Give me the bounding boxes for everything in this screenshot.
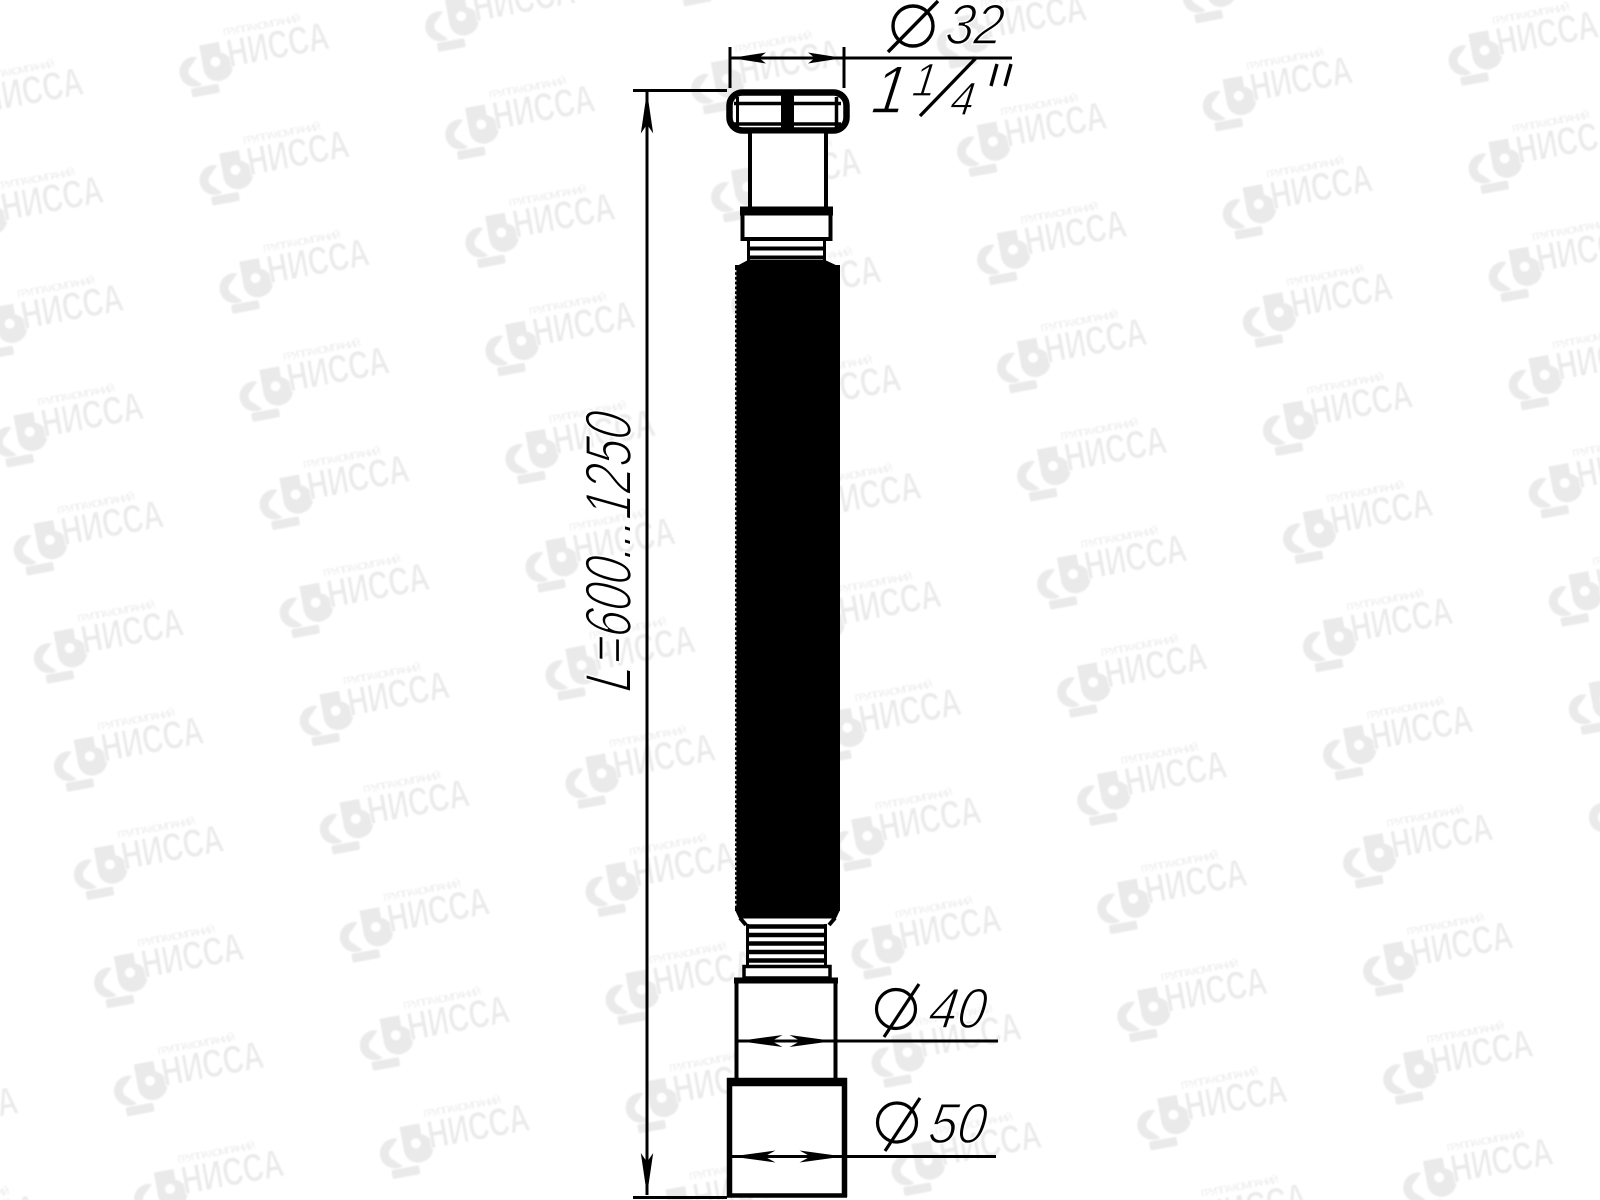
svg-text:L=600...1250: L=600...1250 bbox=[571, 406, 645, 695]
svg-text:32: 32 bbox=[942, 0, 1008, 57]
svg-text:40: 40 bbox=[925, 977, 991, 1041]
svg-text:50: 50 bbox=[925, 1092, 991, 1156]
